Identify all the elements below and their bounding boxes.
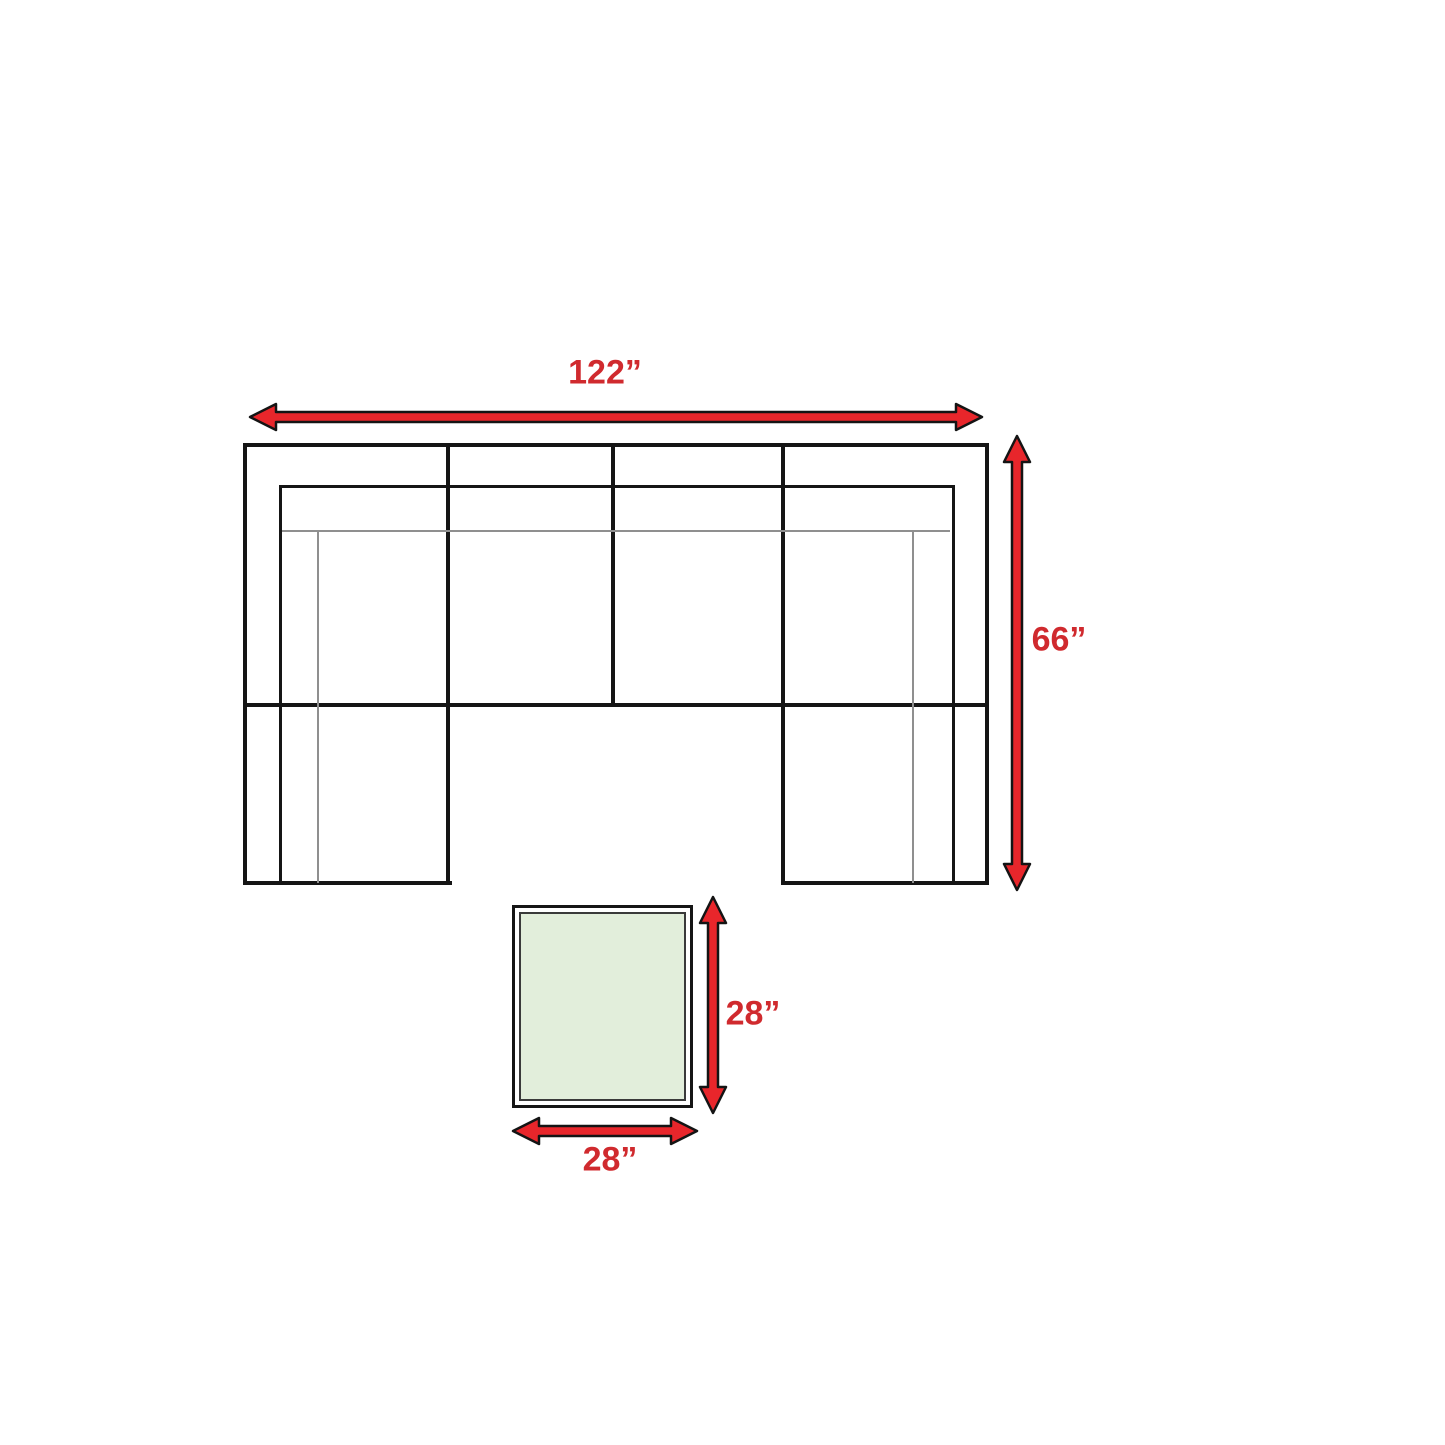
sofa-outline-top bbox=[243, 443, 989, 447]
sofa-cushion-seam-horizontal bbox=[282, 530, 950, 532]
table-top-view bbox=[512, 905, 693, 1108]
double-arrow-horizontal-icon bbox=[246, 399, 986, 435]
table-width-label: 28” bbox=[583, 1141, 638, 1180]
sofa-right-chaise-bottom bbox=[781, 881, 989, 885]
sofa-seat-divider-right bbox=[781, 443, 785, 885]
sofa-cushion-seam-right bbox=[912, 530, 914, 883]
double-arrow-vertical-icon bbox=[999, 432, 1035, 894]
furniture-dimension-diagram: 122” 66” 28” bbox=[0, 0, 1445, 1445]
sofa-left-arm-inner-edge bbox=[279, 485, 282, 884]
sofa-backrest-inner-edge bbox=[279, 485, 955, 488]
sofa-width-label: 122” bbox=[568, 354, 642, 393]
table-surface bbox=[519, 912, 686, 1101]
sofa-depth-label: 66” bbox=[1032, 621, 1087, 660]
sofa-seat-divider-left bbox=[446, 443, 450, 885]
sofa-right-arm-inner-edge bbox=[952, 485, 955, 884]
sofa-outline-left bbox=[243, 443, 247, 885]
sofa-outline-right bbox=[985, 443, 989, 885]
sofa-cushion-seam-left bbox=[317, 530, 319, 883]
sofa-seat-front-line bbox=[243, 703, 989, 707]
sofa-left-chaise-bottom bbox=[243, 881, 452, 885]
table-depth-label: 28” bbox=[726, 995, 781, 1034]
sofa-seat-divider-middle bbox=[611, 443, 615, 707]
